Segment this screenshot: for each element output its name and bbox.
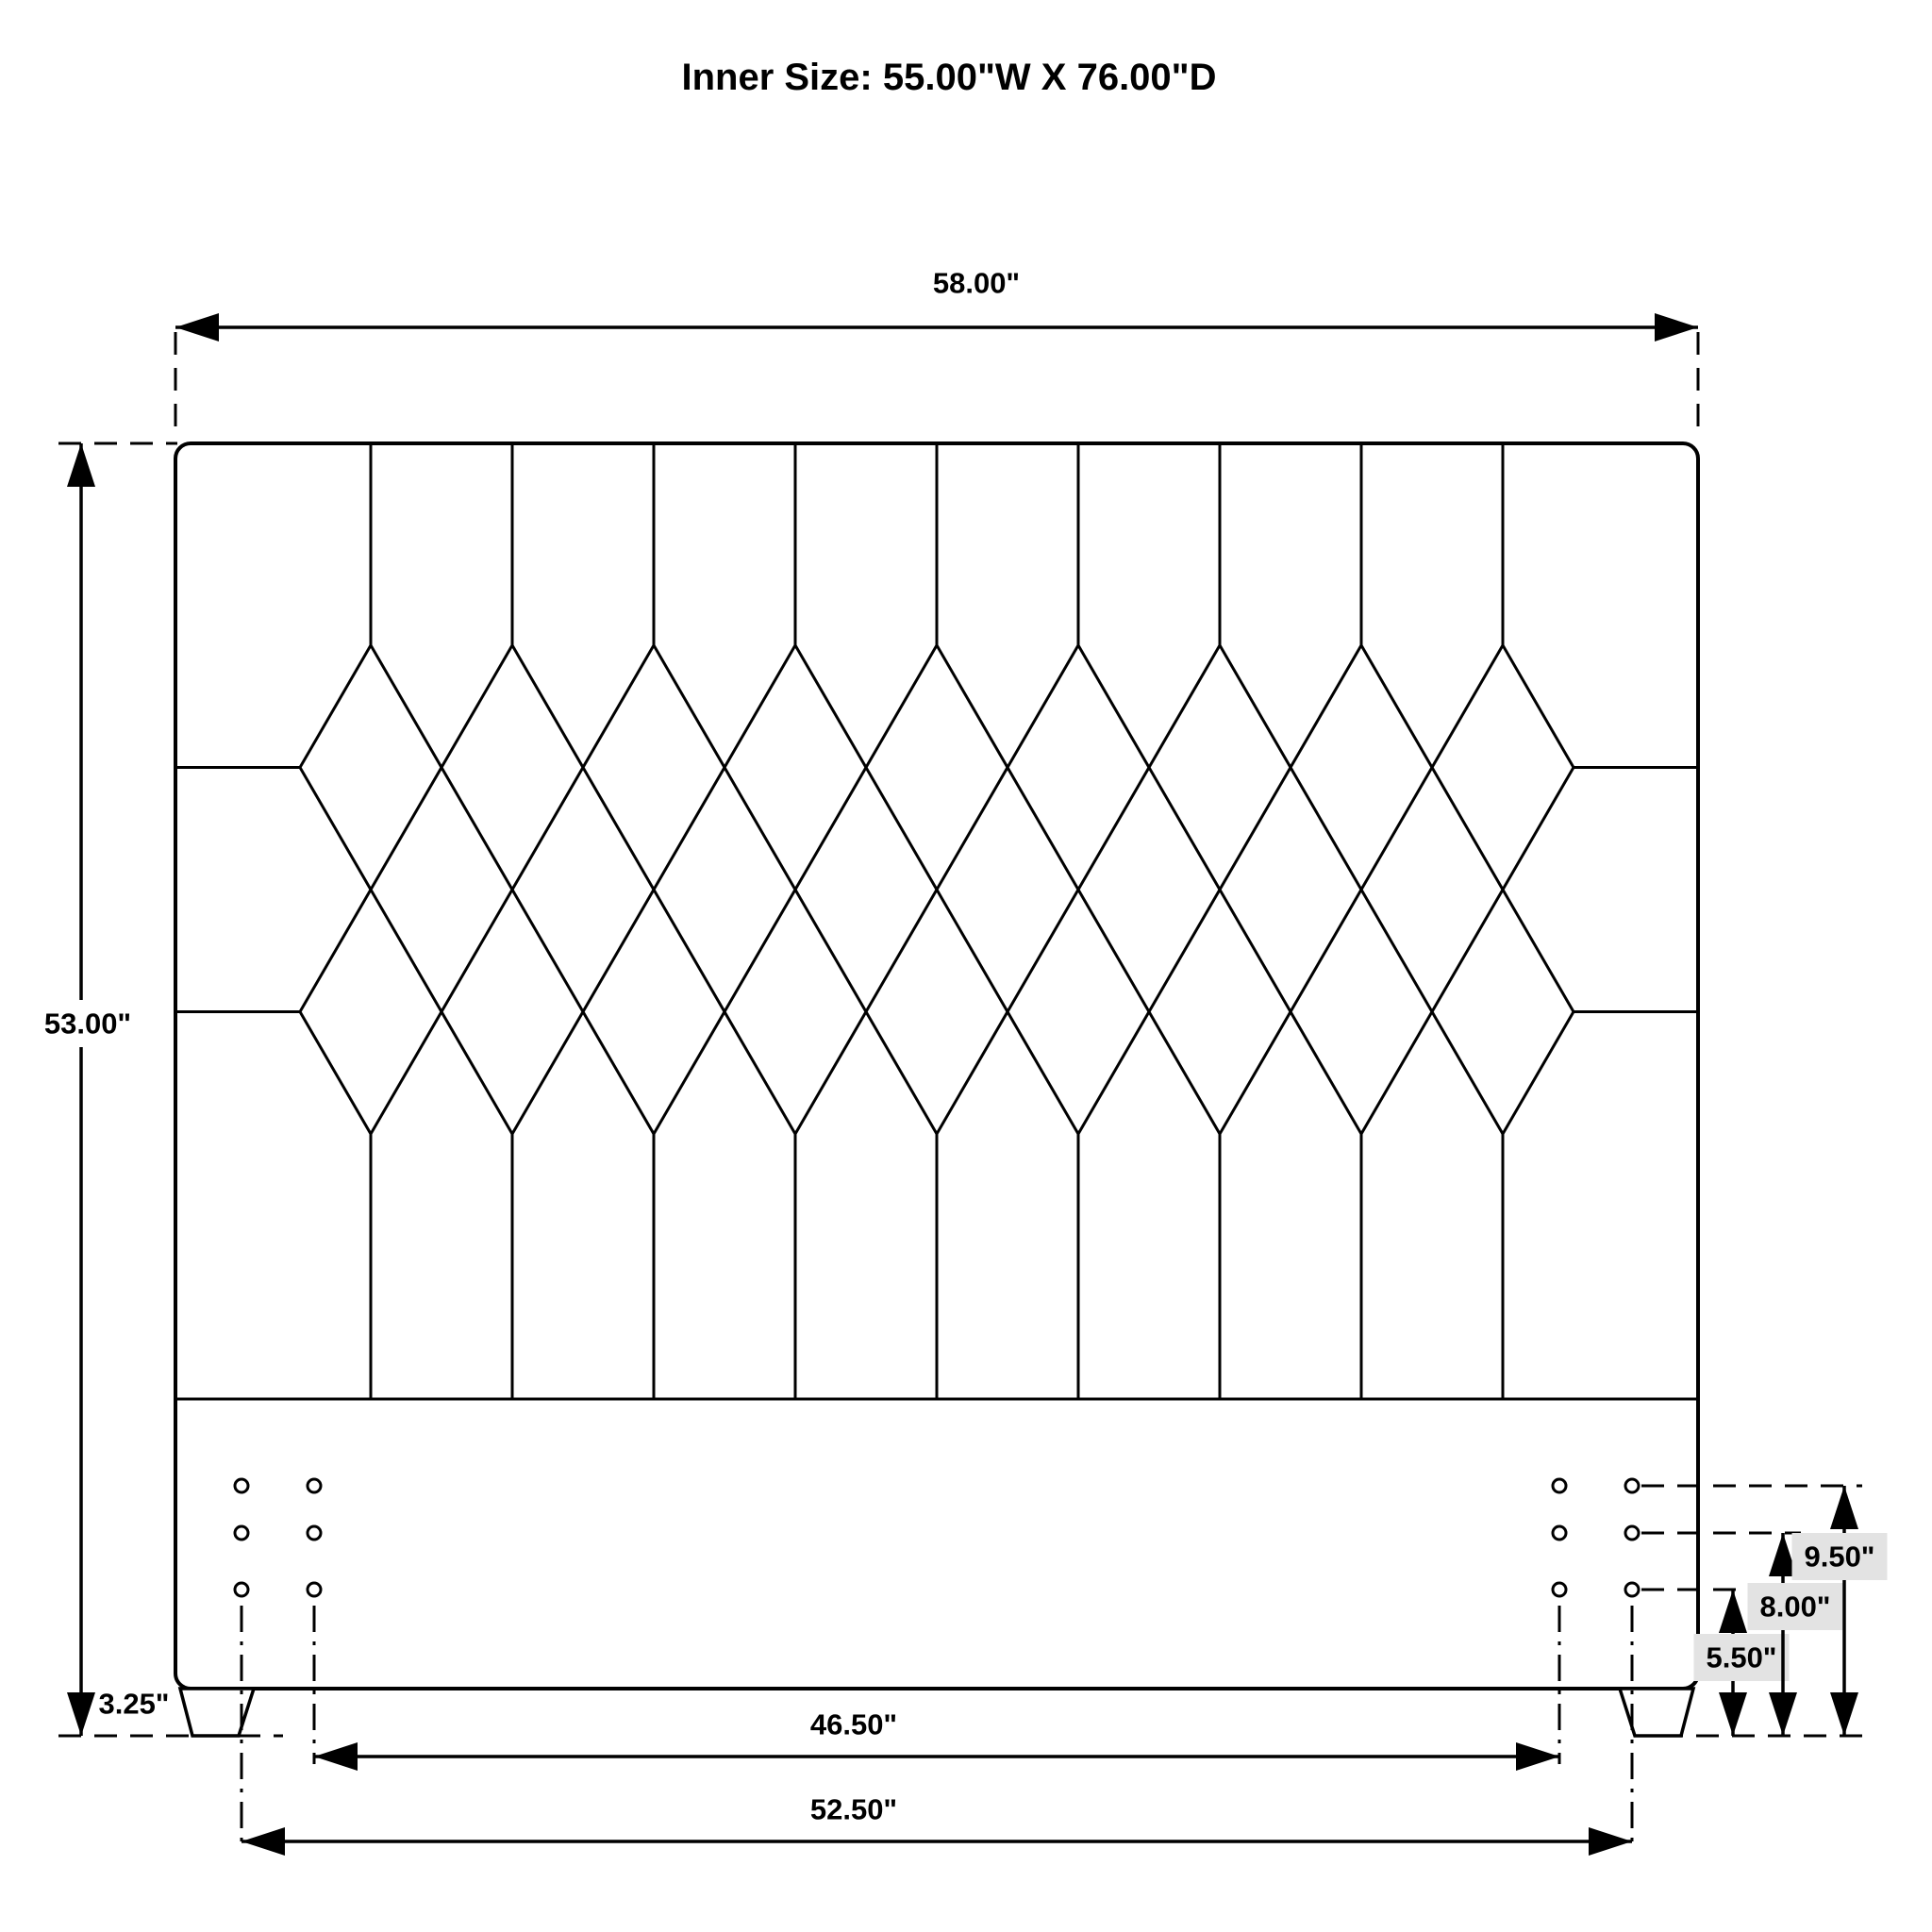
tuft-lattice-line — [866, 768, 937, 891]
tuft-lattice-line — [795, 768, 866, 891]
diagram-page: Inner Size: 55.00"W X 76.00"D 58.00"53.0… — [0, 0, 1932, 1932]
tuft-lattice-line — [866, 890, 937, 1012]
screw-hole — [1625, 1526, 1639, 1540]
tuft-lattice-line — [1078, 1012, 1149, 1135]
tuft-lattice-line — [937, 645, 1008, 768]
tuft-lattice-line — [1008, 890, 1078, 1012]
dimension-label-overall-width: 58.00" — [933, 267, 1020, 300]
tuft-lattice-line — [1361, 645, 1432, 768]
tuft-lattice-line — [1078, 768, 1149, 891]
arrowhead — [1719, 1590, 1747, 1633]
tuft-lattice-line — [441, 1012, 512, 1135]
diagram-title: Inner Size: 55.00"W X 76.00"D — [681, 57, 1216, 98]
tuft-lattice-line — [654, 768, 724, 891]
tuft-lattice-line — [1432, 645, 1503, 768]
tuft-lattice-line — [1220, 890, 1291, 1012]
tuft-lattice-line — [441, 645, 512, 768]
arrowhead — [1516, 1742, 1559, 1771]
tuft-lattice-line — [1220, 645, 1291, 768]
tuft-lattice-line — [1503, 1012, 1574, 1135]
tuft-lattice-line — [795, 1012, 866, 1135]
tuft-lattice-line — [371, 645, 441, 768]
tuft-lattice-line — [1149, 1012, 1220, 1135]
tuft-lattice-line — [1078, 645, 1149, 768]
tuft-lattice-line — [1432, 890, 1503, 1012]
tuft-lattice-line — [937, 1012, 1008, 1135]
tuft-lattice-line — [866, 645, 937, 768]
tuft-lattice-line — [654, 890, 724, 1012]
tuft-lattice-line — [512, 645, 583, 768]
tuft-lattice-line — [795, 890, 866, 1012]
dimension-label-inner-hole-span: 46.50" — [810, 1708, 897, 1741]
tuft-lattice-line — [1008, 645, 1078, 768]
dimension-label-hole-middle-offset: 8.00" — [1759, 1591, 1830, 1624]
screw-hole — [235, 1526, 248, 1540]
arrowhead — [175, 313, 219, 341]
arrowhead — [1830, 1692, 1858, 1736]
dimension-label-outer-hole-span: 52.50" — [810, 1793, 897, 1826]
tuft-lattice-line — [371, 1012, 441, 1135]
tuft-lattice-line — [1008, 1012, 1078, 1135]
tuft-lattice-line — [1149, 890, 1220, 1012]
tuft-lattice-line — [1149, 768, 1220, 891]
tuft-lattice-line — [1149, 645, 1220, 768]
tuft-lattice-line — [583, 768, 654, 891]
tuft-lattice-line — [583, 1012, 654, 1135]
screw-hole — [235, 1479, 248, 1492]
tuft-lattice-line — [1291, 645, 1361, 768]
tuft-lattice-line — [654, 645, 724, 768]
dimension-label-hole-bottom-offset: 5.50" — [1706, 1641, 1776, 1674]
tuft-lattice-line — [1078, 890, 1149, 1012]
screw-hole — [308, 1583, 321, 1596]
tuft-lattice-line — [724, 768, 795, 891]
tuft-lattice-line — [724, 1012, 795, 1135]
tuft-lattice-line — [795, 645, 866, 768]
arrowhead — [241, 1827, 285, 1856]
arrowhead — [67, 1692, 95, 1736]
tuft-lattice-line — [1361, 768, 1432, 891]
screw-hole — [308, 1479, 321, 1492]
tuft-lattice-line — [654, 1012, 724, 1135]
tuft-lattice-line — [300, 1012, 371, 1135]
screw-hole — [1553, 1583, 1566, 1596]
tuft-lattice-line — [1361, 890, 1432, 1012]
tuft-lattice-line — [371, 768, 441, 891]
tuft-lattice-line — [1432, 1012, 1503, 1135]
dimension-label-leg-height: 3.25" — [98, 1688, 169, 1721]
arrowhead — [1769, 1692, 1797, 1736]
arrowhead — [1830, 1486, 1858, 1529]
arrowhead — [67, 443, 95, 487]
tuft-lattice-line — [371, 890, 441, 1012]
arrowhead — [1655, 313, 1698, 341]
arrowhead — [1719, 1692, 1747, 1736]
tuft-lattice-line — [1291, 768, 1361, 891]
screw-hole — [308, 1526, 321, 1540]
tuft-lattice-line — [1503, 645, 1574, 768]
tuft-lattice-line — [1503, 890, 1574, 1012]
tuft-lattice-line — [583, 645, 654, 768]
drawing-layer: 58.00"53.00"46.50"52.50"5.50"8.00"9.50"3… — [32, 267, 1888, 1857]
tuft-lattice-line — [724, 645, 795, 768]
tuft-lattice-line — [937, 890, 1008, 1012]
tuft-lattice-line — [1432, 768, 1503, 891]
tuft-lattice-line — [441, 768, 512, 891]
tuft-lattice-line — [512, 1012, 583, 1135]
tuft-lattice-line — [583, 890, 654, 1012]
tuft-lattice-line — [512, 768, 583, 891]
tuft-lattice-line — [1220, 1012, 1291, 1135]
tuft-lattice-line — [1291, 1012, 1361, 1135]
tuft-lattice-line — [866, 1012, 937, 1135]
screw-hole — [235, 1583, 248, 1596]
tuft-lattice-line — [937, 768, 1008, 891]
screw-hole — [1553, 1526, 1566, 1540]
tuft-lattice-line — [300, 890, 371, 1012]
tuft-lattice-line — [1220, 768, 1291, 891]
arrowhead — [314, 1742, 358, 1771]
screw-hole — [1625, 1479, 1639, 1492]
tuft-lattice-line — [512, 890, 583, 1012]
tuft-lattice-line — [724, 890, 795, 1012]
tuft-lattice-line — [300, 768, 371, 891]
tuft-lattice-line — [441, 890, 512, 1012]
headboard-dimension-diagram: Inner Size: 55.00"W X 76.00"D 58.00"53.0… — [0, 0, 1932, 1932]
tuft-lattice-line — [1503, 768, 1574, 891]
dimension-label-overall-height: 53.00" — [44, 1008, 131, 1041]
arrowhead — [1589, 1827, 1632, 1856]
tuft-lattice-line — [300, 645, 371, 768]
dimension-label-hole-top-offset: 9.50" — [1804, 1541, 1874, 1574]
tuft-lattice-line — [1008, 768, 1078, 891]
screw-hole — [1553, 1479, 1566, 1492]
screw-hole — [1625, 1583, 1639, 1596]
tuft-lattice-line — [1291, 890, 1361, 1012]
tuft-lattice-line — [1361, 1012, 1432, 1135]
